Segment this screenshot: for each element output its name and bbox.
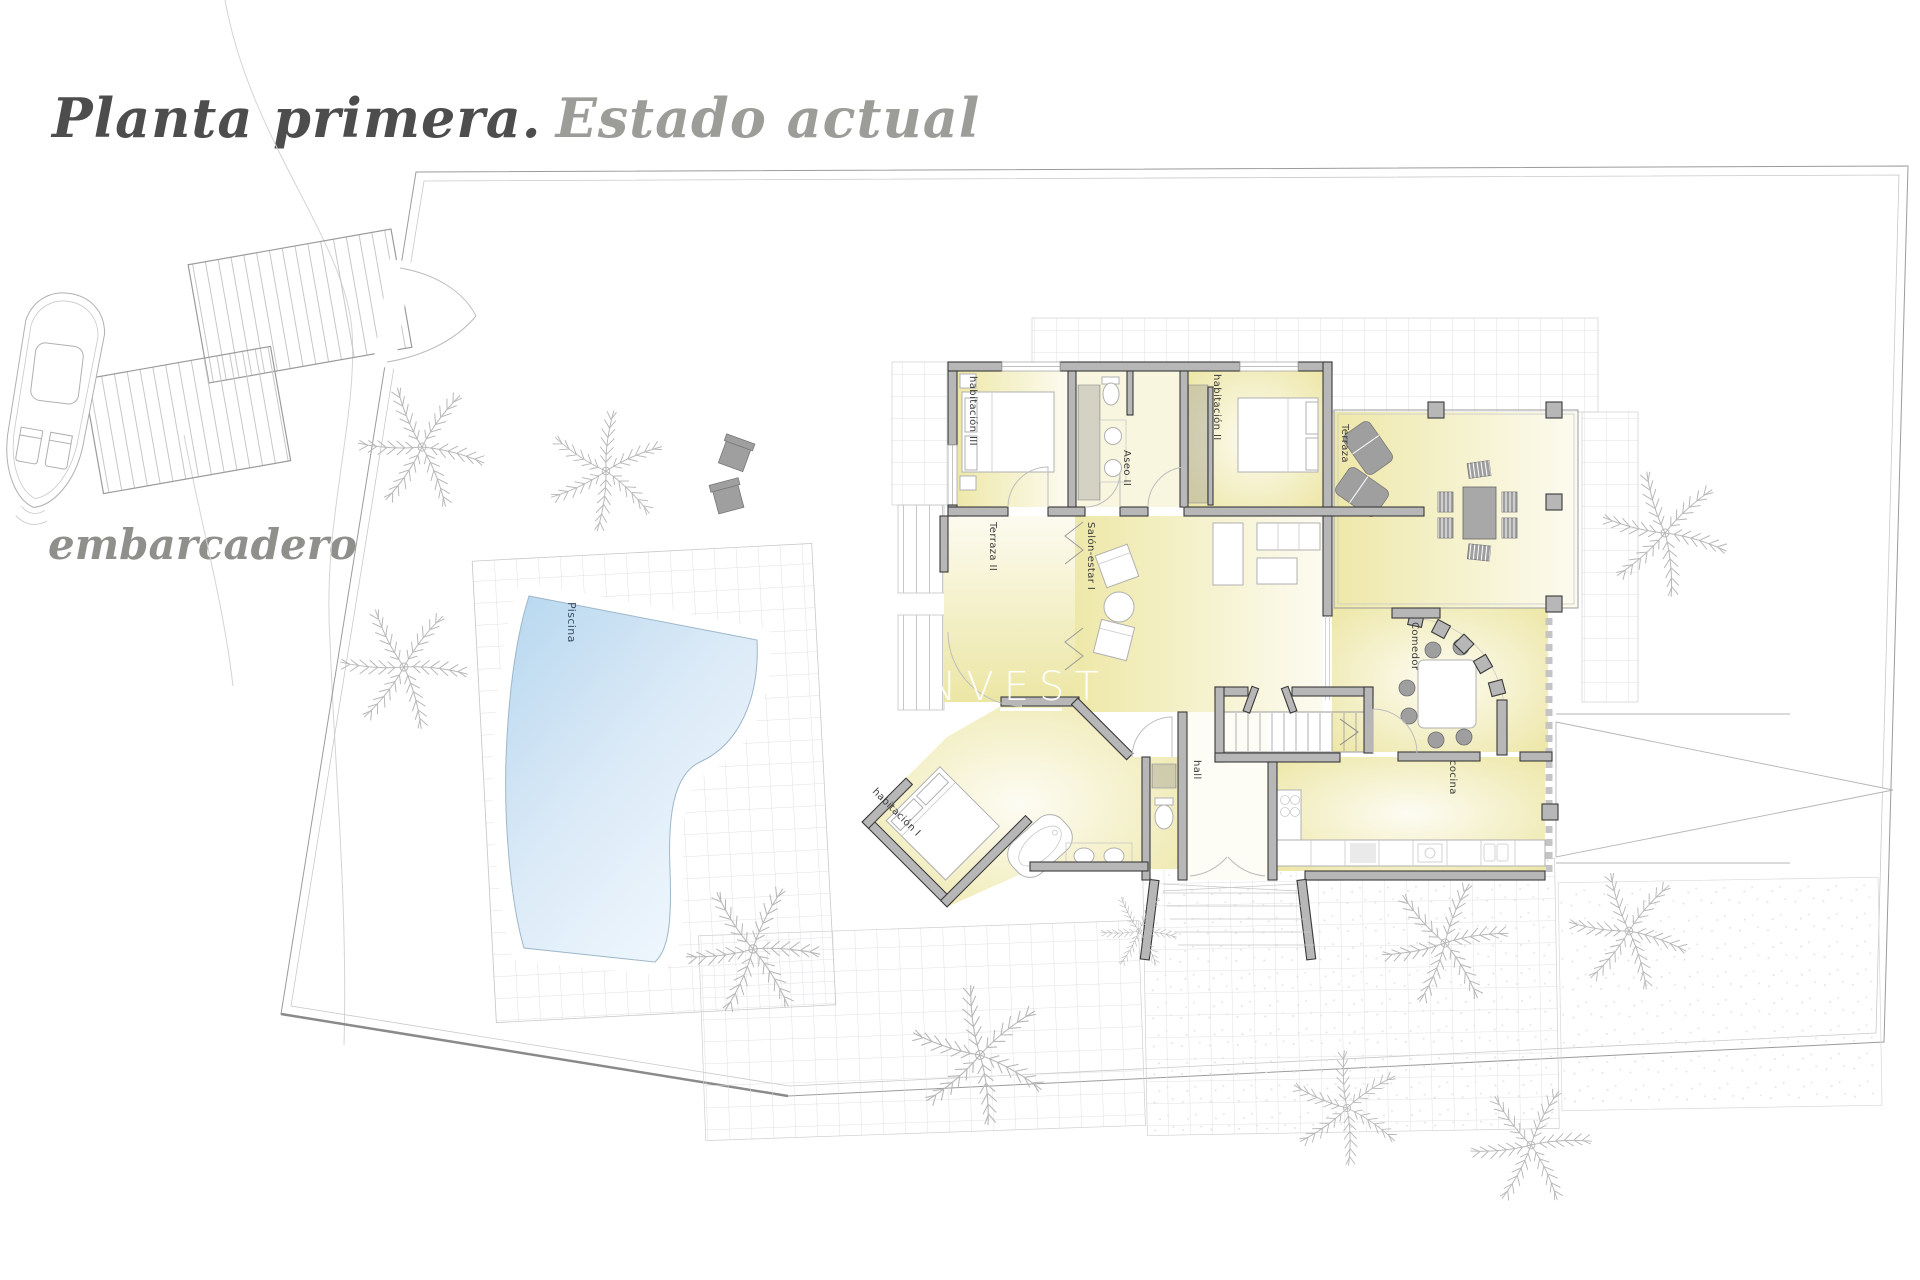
shoreline <box>184 0 353 1045</box>
boat-dock <box>83 229 411 494</box>
label-habitacion2: habitación II <box>1211 374 1223 441</box>
watermark: N INVEST <box>842 664 1109 711</box>
label-aseo2: Aseo II <box>1121 450 1132 486</box>
watermark-text: N INVEST <box>842 664 1109 710</box>
house: habitación III Aseo II habitación II Ter… <box>709 362 1578 960</box>
label-habitacion3: habitación III <box>967 376 979 446</box>
label-salon-estar: Salón-estar I <box>1085 522 1097 590</box>
label-hall: hall <box>1191 760 1202 780</box>
pool: Piscina <box>472 543 836 1022</box>
label-terraza: Terraza <box>1339 423 1350 463</box>
floor-plan-page: Planta primera.Estado actual embarcadero <box>0 0 1920 1280</box>
pool-label: Piscina <box>565 602 578 643</box>
label-comedor: Comedor <box>1409 622 1420 671</box>
floor-plan-drawing: Piscina <box>0 0 1920 1280</box>
label-cocina: cocina <box>1447 760 1458 795</box>
label-terraza2: Terraza II <box>987 521 998 571</box>
